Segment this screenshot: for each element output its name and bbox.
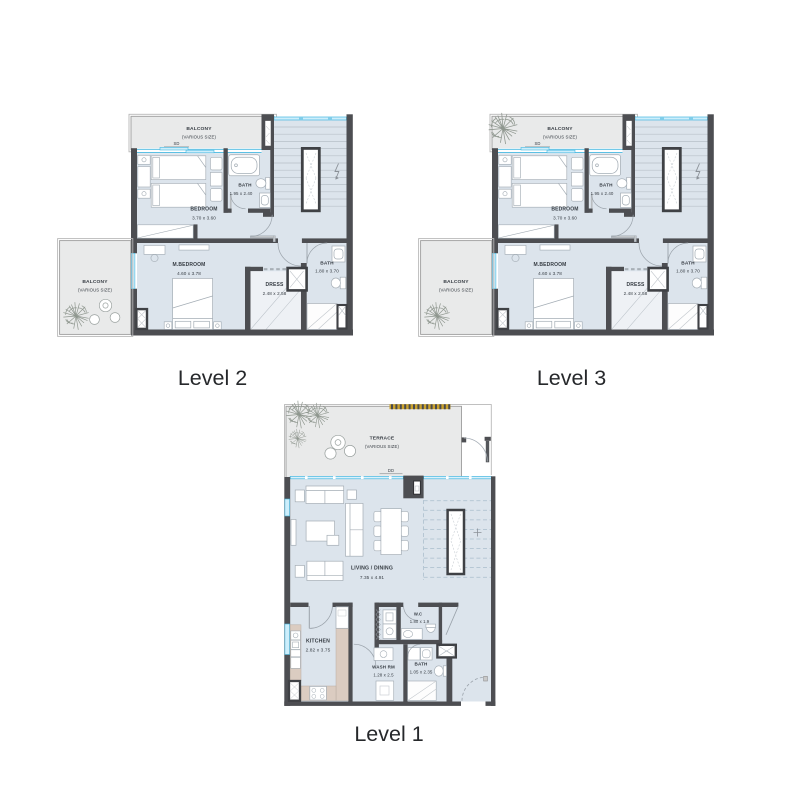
svg-text:LIVING / DINING: LIVING / DINING	[351, 566, 393, 572]
svg-text:7.35 x 4.91: 7.35 x 4.91	[360, 575, 385, 580]
svg-text:DD: DD	[388, 468, 394, 473]
svg-text:BATH: BATH	[414, 662, 428, 667]
svg-text:W.C: W.C	[414, 612, 422, 617]
svg-text:1.28 x 2.5: 1.28 x 2.5	[373, 673, 394, 678]
svg-text:1.80 x 1.9: 1.80 x 1.9	[410, 619, 430, 624]
svg-text:Level 2: Level 2	[178, 366, 247, 390]
svg-text:Level 1: Level 1	[354, 722, 423, 746]
svg-text:2.82 x 3.75: 2.82 x 3.75	[306, 648, 331, 654]
svg-text:(VARIOUS SIZE): (VARIOUS SIZE)	[365, 444, 399, 449]
svg-text:1.05 x 2.35: 1.05 x 2.35	[410, 670, 433, 675]
svg-text:Level 3: Level 3	[537, 366, 606, 390]
svg-text:KITCHEN: KITCHEN	[306, 639, 330, 645]
svg-text:TERRACE: TERRACE	[370, 436, 395, 442]
svg-text:WASH RM: WASH RM	[372, 665, 395, 670]
